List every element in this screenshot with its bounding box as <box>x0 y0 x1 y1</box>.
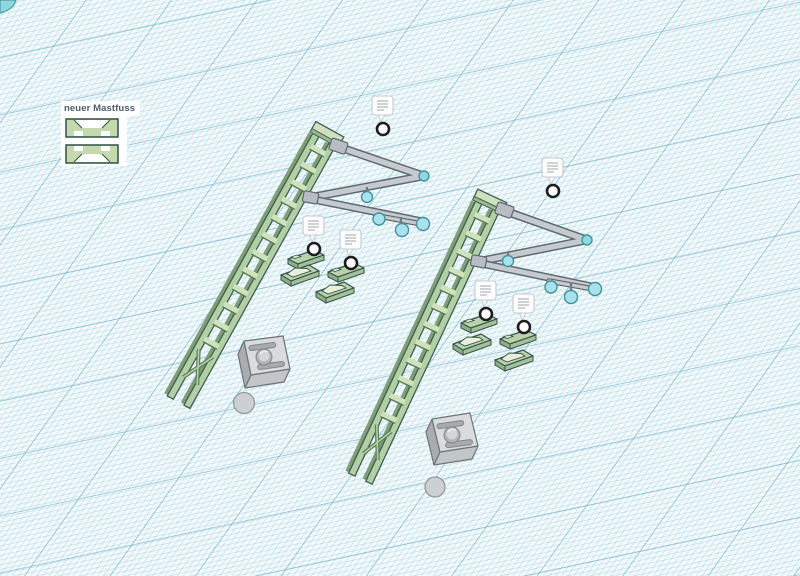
note-icon[interactable] <box>340 230 361 269</box>
base-cube-left[interactable] <box>238 336 290 388</box>
mast-foot-part[interactable] <box>453 334 491 355</box>
note-icon[interactable] <box>303 216 324 255</box>
mast-foot-top-view <box>61 116 127 166</box>
base-cube-right[interactable] <box>426 413 478 465</box>
sphere-left[interactable] <box>234 393 255 414</box>
sphere-right[interactable] <box>425 477 445 497</box>
selection-label: neuer Mastfuss <box>61 101 140 116</box>
note-icon[interactable] <box>542 158 563 197</box>
mast-foot-part[interactable] <box>281 265 319 286</box>
note-icon[interactable] <box>513 294 534 333</box>
mast-foot-part[interactable] <box>495 350 533 371</box>
mast-foot-part[interactable] <box>500 330 536 349</box>
selection-thumbnail <box>61 116 127 166</box>
selection-label-text: neuer Mastfuss <box>64 103 135 114</box>
note-icon[interactable] <box>372 96 393 135</box>
teal-corner-object[interactable] <box>0 0 16 13</box>
mast-foot-part[interactable] <box>316 282 354 303</box>
viewport-3d[interactable]: neuer Mastfuss <box>0 0 800 576</box>
note-icon[interactable] <box>475 281 496 320</box>
scene-svg <box>0 0 800 576</box>
